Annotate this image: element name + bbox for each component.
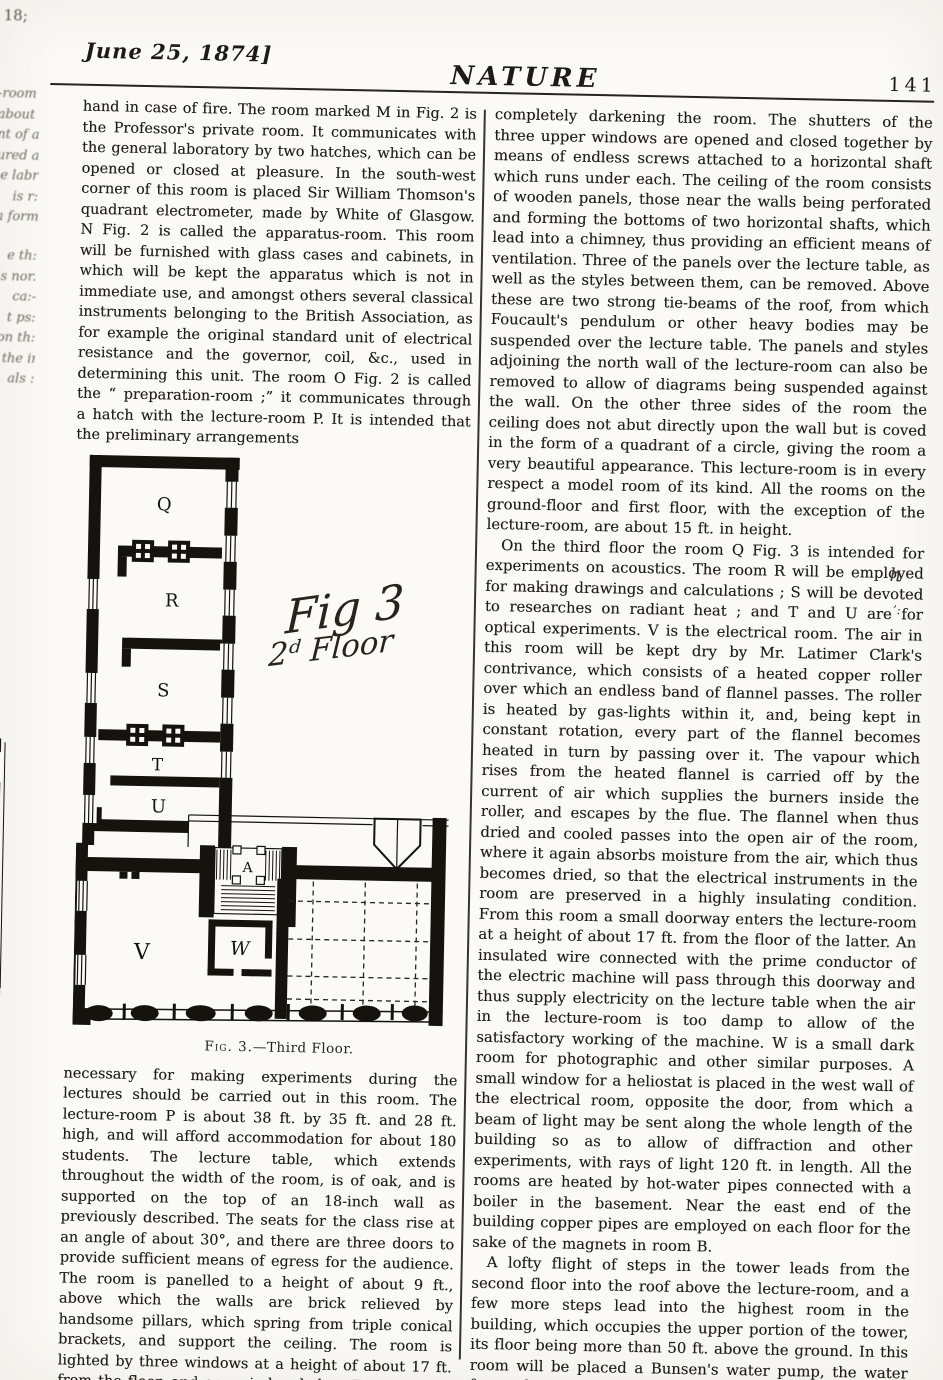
margin-fragment: t ps: bbox=[0, 307, 36, 328]
marginalia-mark: ’: bbox=[893, 603, 901, 617]
margin-fragment: e labr bbox=[0, 166, 39, 187]
journal-title: NATURE bbox=[450, 61, 601, 94]
figure-caption-label: Fig. 3. bbox=[204, 1038, 253, 1055]
figure-caption-text: —Third Floor. bbox=[253, 1039, 354, 1057]
right-paragraph-3: A lofty flight of steps in the tower lea… bbox=[468, 1253, 910, 1380]
plan-bay bbox=[374, 818, 421, 869]
room-label-v: V bbox=[133, 939, 151, 964]
figure-caption: Fig. 3.—Third Floor. bbox=[114, 1036, 444, 1059]
margin-fragment: a forme bbox=[0, 207, 38, 228]
margin-fragment: is r: bbox=[0, 186, 38, 207]
marginalia-mark: h bbox=[889, 565, 901, 586]
figure-3-third-floor: Q R S T U V W A Fig 3 2ᵈ Floor Fig. 3 bbox=[64, 450, 470, 1068]
right-column: completely darkening the room. The shutt… bbox=[468, 105, 933, 1380]
plan-garden-border bbox=[75, 997, 443, 1027]
margin-bleed-corner: 18; bbox=[4, 6, 28, 24]
issue-date: June 25, 1874] bbox=[85, 38, 273, 67]
marginalia-mark: ’ bbox=[879, 647, 883, 661]
room-label-a: A bbox=[241, 860, 253, 876]
margin-fragment: is nor. bbox=[0, 266, 37, 287]
page-number: 141 bbox=[888, 74, 937, 97]
floor-plan-drawing: Q R S T U V W A bbox=[72, 452, 462, 1037]
scanned-journal-page: 18; -room a about a nt of a ured a e lab… bbox=[0, 0, 943, 1380]
margin-fragment: nt of a bbox=[0, 125, 39, 146]
plan-staircase bbox=[214, 845, 282, 914]
room-label-u: U bbox=[151, 796, 167, 817]
margin-bleed-fragments-bottom: e th: is nor. ca:- t ps: on th: f the ir… bbox=[0, 246, 37, 390]
margin-fragment: on th: bbox=[0, 328, 35, 349]
margin-fragment: e th: bbox=[0, 246, 37, 267]
page-rotation-wrapper: 18; -room a about a nt of a ured a e lab… bbox=[0, 0, 943, 1380]
left-paragraph-2: necessary for making experiments during … bbox=[56, 1063, 457, 1380]
margin-fragment: -room a bbox=[0, 84, 40, 105]
right-paragraph-2: On the third floor the room Q Fig. 3 is … bbox=[472, 535, 924, 1261]
left-column: hand in case of fire. The room marked M … bbox=[56, 97, 477, 1380]
right-paragraph-1: completely darkening the room. The shutt… bbox=[486, 105, 933, 544]
facing-page-figure-bleed bbox=[0, 738, 11, 1119]
margin-fragment: about a bbox=[0, 104, 40, 125]
margin-bleed-fragments-top: -room a about a nt of a ured a e labr is… bbox=[0, 84, 40, 228]
room-label-s: S bbox=[157, 680, 170, 701]
room-label-r: R bbox=[165, 590, 179, 611]
margin-fragment: als : bbox=[0, 369, 35, 390]
room-label-w: W bbox=[230, 937, 251, 959]
margin-fragment: ca:- bbox=[0, 287, 36, 308]
margin-fragment: ured a bbox=[0, 145, 39, 166]
room-label-t: T bbox=[151, 755, 163, 775]
room-label-q: Q bbox=[157, 494, 172, 515]
handwritten-annotation: Fig 3 2ᵈ Floor bbox=[284, 580, 406, 666]
plan-roof-grid bbox=[287, 880, 432, 1013]
left-paragraph-1: hand in case of fire. The room marked M … bbox=[76, 97, 477, 453]
margin-fragment: f the ir bbox=[0, 348, 35, 369]
